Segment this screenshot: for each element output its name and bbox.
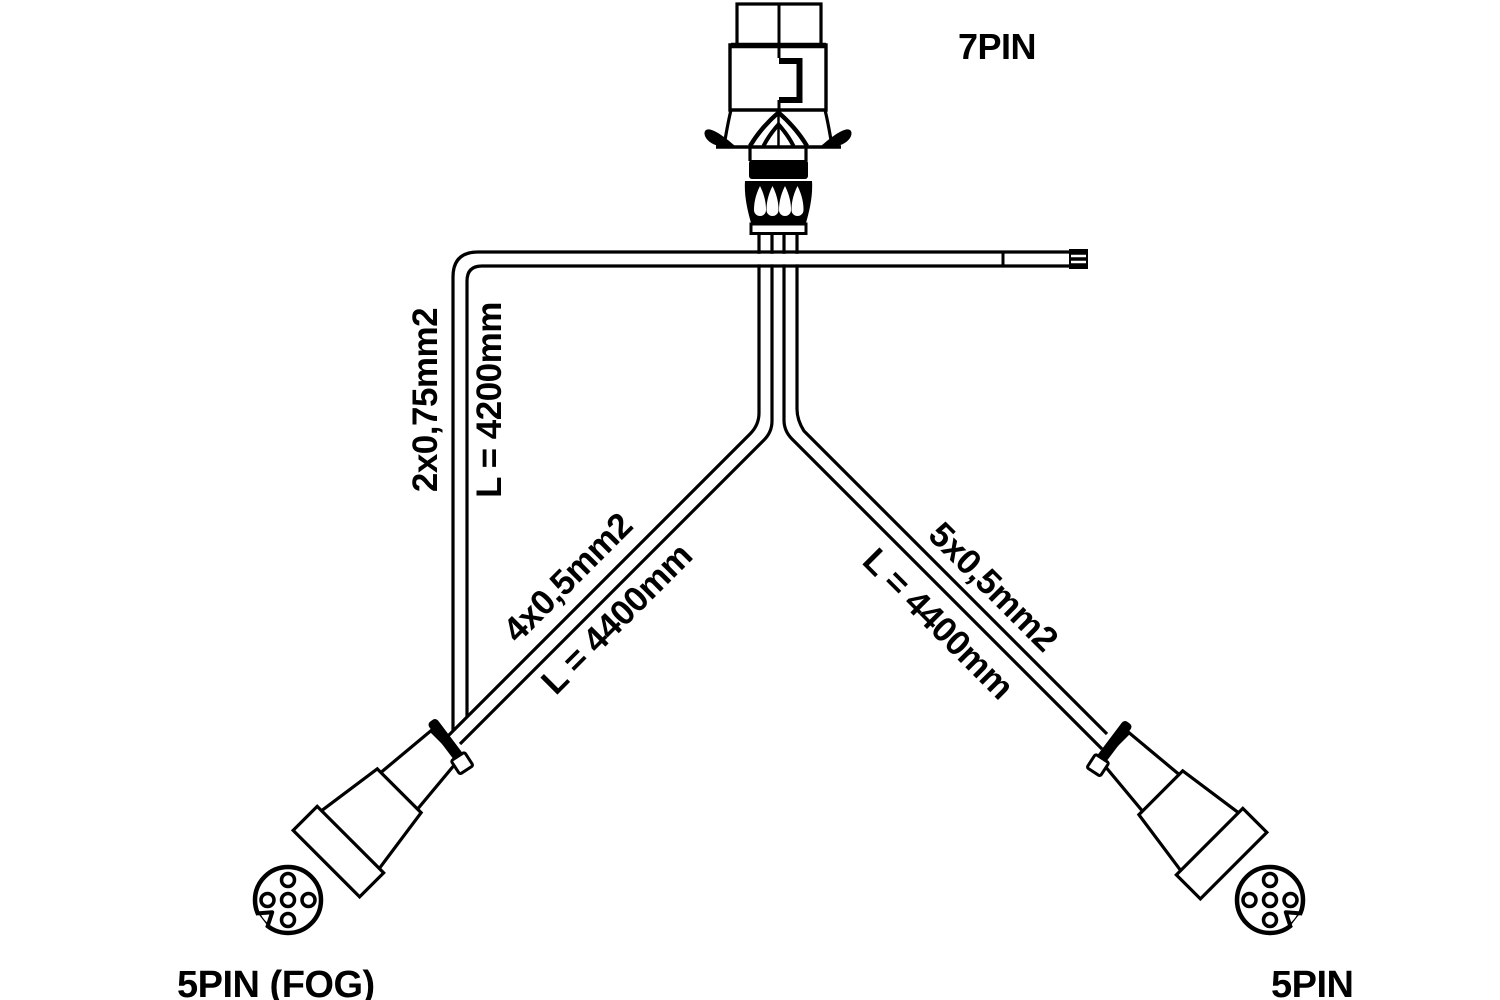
right-branch-wire-inner [784, 233, 1102, 749]
wire-end-terminal [1069, 249, 1088, 269]
5pin-connector-body [1073, 705, 1267, 899]
grip-end-cap [751, 224, 806, 234]
label-7pin: 7PIN [958, 26, 1036, 67]
label-5pin-fog: 5PIN (FOG) [177, 964, 375, 1000]
flange-wing-right [821, 129, 852, 147]
flange-wing-left [704, 129, 735, 147]
crossing-erase [745, 254, 815, 265]
wiring-harness-diagram: 7PIN 5PIN (FOG) 5PIN 2x0,75mm2 L = 4200m… [0, 0, 1500, 1000]
seal-band [749, 160, 808, 179]
label-5pin: 5PIN [1271, 964, 1353, 1000]
label-fog-cable-spec: 2x0,75mm2 [406, 308, 445, 492]
plug-neck [750, 147, 806, 161]
5pin-fog-connector-body [293, 703, 487, 897]
label-fog-cable-length: L = 4200mm [470, 302, 509, 498]
5pin-connector-face [1237, 867, 1309, 933]
5pin-fog-connector-face [249, 867, 321, 933]
7pin-connector [704, 4, 851, 234]
